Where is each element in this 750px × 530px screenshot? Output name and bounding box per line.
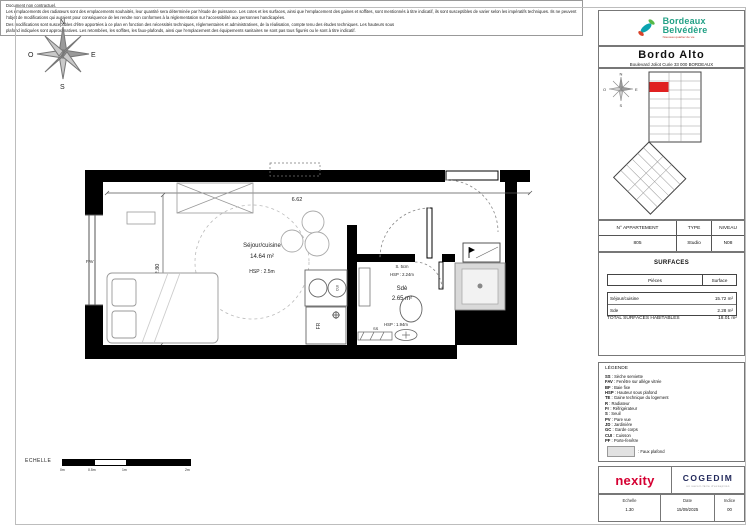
brand-name-line2: Belvédère (663, 26, 708, 35)
keyplan-box: N E S O (598, 68, 745, 220)
north-compass: N E S O (25, 15, 101, 91)
cui-label: CUI (336, 285, 340, 291)
sde-door-leaf (439, 262, 443, 289)
brand-logo-icon (636, 17, 658, 39)
room1-hsp: HSP : 2.5m (249, 269, 274, 275)
kitchen-block (305, 270, 347, 344)
meta-indice: Indice 00 (714, 495, 744, 521)
shower (455, 263, 505, 310)
indice-label: Indice (724, 498, 735, 503)
ss-label: SS (373, 326, 379, 331)
scalebar-tick: 0m (60, 468, 65, 472)
scalebar-tick: 2m (185, 468, 190, 472)
echelle-label: Echelle (622, 498, 636, 503)
fridge (306, 307, 346, 344)
nexity-logo-text: nexity (615, 473, 654, 488)
highlighted-unit (650, 82, 669, 92)
entry-door-leaf (446, 171, 498, 180)
scalebar-tick: 1m (122, 468, 127, 472)
scalebar-segment (126, 459, 191, 466)
room2-area: 2.65 m² (392, 296, 412, 302)
keyplan-compass (609, 77, 633, 101)
sde-door-swing (415, 262, 442, 289)
apt-value-level: N08 (711, 236, 744, 251)
surfaces-header: Pièces Surface (607, 274, 737, 286)
title-block-meta: Echelle 1.30 Date 15/09/2025 Indice 00 (598, 494, 745, 522)
room1-area: 14.64 m² (250, 254, 274, 260)
surfaces-col-surface: Surface (703, 275, 736, 285)
hall-door-leaf (427, 208, 432, 258)
room1-name: Séjour/cuisine (243, 243, 281, 249)
towel-radiator (358, 332, 392, 340)
compass-label-e: E (91, 52, 96, 59)
washbasin-cabinet (359, 268, 370, 306)
apartment-table: N° APPARTEMENT TYPE NIVEAU 805 Studio N0… (598, 220, 745, 252)
keyplan-drawing: N E S O (599, 69, 744, 219)
cogedim-tagline: un savoir-faire d'exception (686, 484, 729, 488)
apt-value-type: Studio (676, 236, 711, 251)
keyplan-compass-s: S (620, 103, 623, 108)
residence-address: Boulevard Joliot Curie 33 000 BORDEAUX (599, 62, 744, 67)
room2-hsp-upper: HSP : 2.24m (390, 272, 414, 277)
shower-drain (478, 284, 483, 289)
ceiling-box (177, 183, 253, 213)
apt-value-number: 805 (599, 236, 676, 251)
echelle-value: 1.30 (625, 507, 633, 512)
residence-name: Bordo Alto (599, 49, 744, 61)
logos-box: nexity COGEDIM un savoir-faire d'excepti… (598, 466, 745, 494)
keyplan-compass-o: O (603, 87, 606, 92)
cogedim-logo-text: COGEDIM (683, 473, 733, 483)
keyplan-compass-n: N (620, 72, 623, 77)
pillow (112, 311, 136, 338)
apt-header-number: N° APPARTEMENT (599, 221, 676, 236)
nexity-logo: nexity (599, 467, 671, 493)
legend-item: PFPorte-fenêtre (605, 438, 744, 443)
entry-door-swing (446, 180, 498, 232)
date-label: Date (683, 498, 692, 503)
hall-door-swing (380, 208, 430, 258)
room2-name: Sdè (397, 286, 408, 292)
surfaces-total: TOTAL SURFACES HABITABLES 18.01 m² (607, 316, 737, 321)
room2-seuil: S. 5cm (395, 264, 409, 269)
floor-plan: FAV 6.62 2.80 (80, 100, 540, 395)
plan-sheet: N E S O FAV (0, 0, 750, 530)
scalebar-segment (62, 459, 95, 466)
surface-row-value: 15.72 m² (702, 293, 736, 304)
surfaces-total-value: 18.01 m² (680, 316, 737, 321)
brand-box: Bordeaux Belvédère Nouveau quartier de v… (598, 10, 745, 46)
room2-hsp-lower: HSP : 1.94m (384, 322, 408, 327)
surfaces-rows: Séjour/cuisine 15.72 m² Sde 2.28 m² (607, 292, 737, 316)
fav-label: FAV (86, 259, 94, 264)
surfaces-col-piece: Pièces (608, 275, 703, 285)
scalebar-tick: 0.5m (88, 468, 96, 472)
faux-plafond-label: Faux plafond (638, 449, 665, 454)
keyplan-compass-e: E (635, 87, 638, 92)
shelf (127, 212, 155, 224)
surfaces-title: SURFACES (599, 260, 744, 266)
scalebar-segment (94, 459, 127, 466)
apt-header-level: NIVEAU (711, 221, 744, 236)
meta-echelle: Echelle 1.30 (599, 495, 660, 521)
faux-plafond-legend: Faux plafond (607, 446, 665, 457)
surfaces-total-label: TOTAL SURFACES HABITABLES (607, 316, 680, 321)
legend-title: LÉGENDE (605, 366, 744, 371)
residence-box: Bordo Alto Boulevard Joliot Curie 33 000… (598, 46, 745, 68)
compass-label-o: O (28, 52, 34, 59)
surface-row-value: 2.28 m² (702, 305, 736, 315)
apt-header-type: TYPE (676, 221, 711, 236)
faux-plafond-swatch (607, 446, 635, 457)
dim-width: 6.62 (292, 197, 303, 203)
fr-label: FR (316, 322, 322, 329)
surface-row-piece: Séjour/cuisine (608, 293, 702, 304)
date-value: 15/09/2025 (677, 507, 699, 512)
compass-label-n: N (60, 19, 65, 26)
surface-row-piece: Sde (608, 305, 702, 315)
te-box (463, 243, 500, 262)
brand-tagline: Nouveau quartier de vie (663, 36, 708, 39)
meta-date: Date 15/09/2025 (660, 495, 714, 521)
surface-row: Sde 2.28 m² (608, 304, 736, 315)
compass-label-s: S (60, 84, 65, 91)
indice-value: 00 (727, 507, 732, 512)
keyplan-building (614, 72, 701, 214)
bed (107, 273, 218, 343)
cogedim-logo: COGEDIM un savoir-faire d'exception (671, 467, 744, 493)
legend-box: LÉGENDE SSSèche serviette FAVFenêtre sur… (598, 362, 745, 462)
kitchen-sink (309, 279, 327, 297)
pillow (112, 279, 136, 306)
scalebar-label: ECHELLE (25, 458, 51, 464)
surface-row: Séjour/cuisine 15.72 m² (608, 293, 736, 304)
surfaces-box: SURFACES Pièces Surface Séjour/cuisine 1… (598, 252, 745, 356)
